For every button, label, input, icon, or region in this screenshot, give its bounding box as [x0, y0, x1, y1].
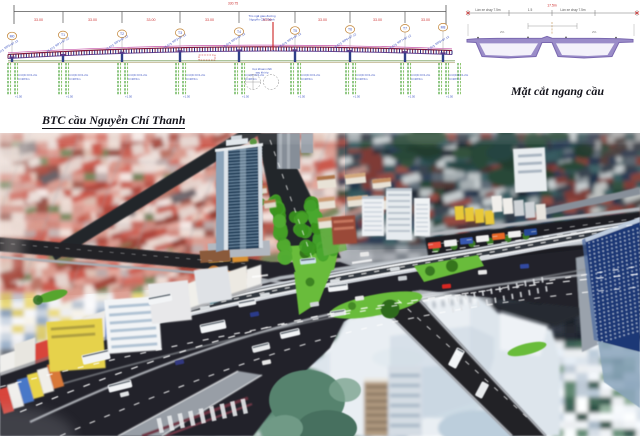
svg-text:Làn xe chạy 7.5m: Làn xe chạy 7.5m: [560, 8, 586, 12]
svg-text:Nguyễn Chí Thanh: Nguyễn Chí Thanh: [249, 17, 274, 22]
svg-text:MP7+97.12: MP7+97.12: [397, 33, 413, 44]
svg-text:MP5+97.12: MP5+97.12: [287, 32, 303, 43]
svg-text:C=28.5m: C=28.5m: [301, 77, 313, 81]
svg-text:+1.50: +1.50: [446, 95, 454, 99]
svg-text:sau khi ép: sau khi ép: [256, 71, 269, 75]
svg-text:33.00: 33.00: [34, 18, 43, 22]
svg-text:+1.50: +1.50: [353, 95, 361, 99]
svg-text:+1.50: +1.50: [183, 95, 191, 99]
svg-text:2%: 2%: [500, 30, 505, 34]
svg-text:T1: T1: [61, 33, 65, 37]
svg-text:+1.50: +1.50: [125, 95, 133, 99]
svg-text:33.00: 33.00: [373, 18, 382, 22]
svg-text:T5: T5: [293, 29, 297, 33]
svg-text:C=28.5m: C=28.5m: [356, 77, 368, 81]
svg-text:+1.50: +1.50: [242, 95, 250, 99]
svg-text:+5.073: +5.073: [222, 41, 232, 49]
svg-text:C=28.5m: C=28.5m: [69, 77, 81, 81]
svg-text:33.00: 33.00: [205, 18, 214, 22]
svg-text:330.75: 330.75: [228, 2, 238, 6]
svg-text:M8: M8: [441, 26, 446, 30]
svg-text:+1.50: +1.50: [408, 95, 416, 99]
svg-text:C=28.5m: C=28.5m: [128, 77, 140, 81]
svg-text:33.00: 33.00: [88, 18, 97, 22]
svg-text:1.5: 1.5: [528, 8, 533, 12]
svg-text:MP6+97.12: MP6+97.12: [342, 32, 358, 43]
svg-text:C=28.5m: C=28.5m: [18, 77, 30, 81]
svg-text:T7: T7: [403, 27, 407, 31]
svg-text:33.00: 33.00: [147, 18, 156, 22]
svg-text:Làn xe chạy 7.5m: Làn xe chạy 7.5m: [475, 8, 501, 12]
svg-text:M0: M0: [10, 34, 15, 38]
svg-text:C=28.5m: C=28.5m: [411, 77, 423, 81]
svg-text:C=28.5m: C=28.5m: [449, 77, 461, 81]
svg-text:MP0+97.12: MP0+97.12: [4, 39, 20, 50]
svg-text:T6: T6: [348, 28, 352, 32]
svg-text:+1.50: +1.50: [66, 95, 74, 99]
svg-text:C=28.5m: C=28.5m: [186, 77, 198, 81]
svg-text:17.5m: 17.5m: [547, 4, 557, 8]
svg-text:33.00: 33.00: [421, 18, 430, 22]
svg-text:2%: 2%: [592, 30, 597, 34]
svg-text:+5.073: +5.073: [388, 43, 398, 51]
svg-text:MP8+97.12: MP8+97.12: [435, 35, 451, 46]
svg-text:MP1+97.12: MP1+97.12: [55, 36, 71, 47]
svg-text:+1.50: +1.50: [298, 95, 306, 99]
svg-text:33.00: 33.00: [318, 18, 327, 22]
svg-text:+1.50: +1.50: [15, 95, 23, 99]
